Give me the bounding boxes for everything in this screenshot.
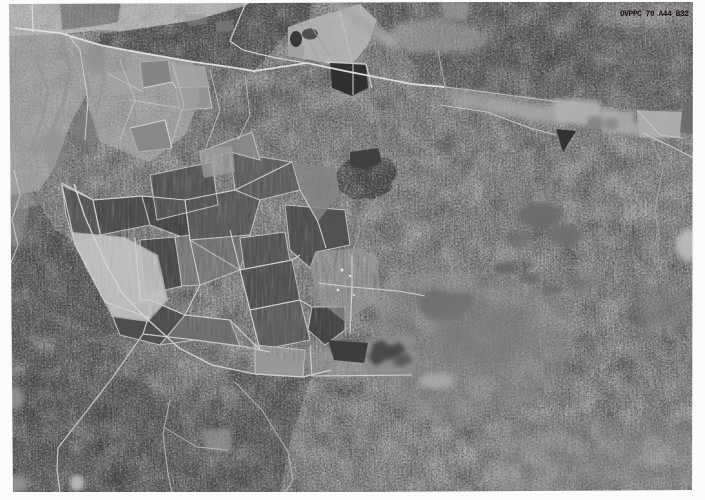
svg-text:DVPPC 70 A44 B32: DVPPC 70 A44 B32 — [620, 11, 689, 19]
